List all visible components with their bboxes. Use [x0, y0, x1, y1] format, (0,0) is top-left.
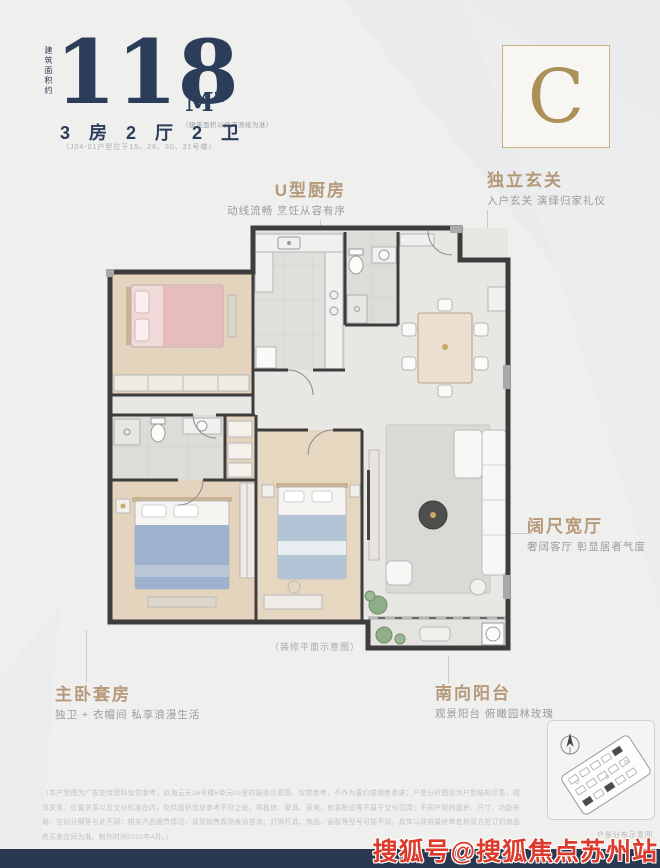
callout-kitchen-title: U型厨房 [200, 182, 346, 199]
callout-living: 阔尺宽厅 奢阔客厅 彰显居者气度 [527, 518, 660, 553]
compass-icon [561, 733, 579, 754]
site-map-svg [548, 721, 654, 819]
area-vertical-label: 建筑面积约 [42, 46, 54, 96]
floor-corridor [110, 395, 253, 415]
room-layout-note: （J04-01户型位于15、26、30、31号楼） [62, 142, 217, 152]
unit-type-letter: C [528, 60, 585, 134]
leader-line-balcony [448, 656, 449, 683]
floor-plan [88, 225, 518, 655]
watermark-text: 搜狐号@搜狐焦点苏州站 [373, 832, 658, 868]
callout-balcony-title: 南向阳台 [435, 685, 605, 702]
callout-living-title: 阔尺宽厅 [527, 518, 660, 535]
callout-master-title: 主卧套房 [55, 686, 245, 703]
callout-balcony: 南向阳台 观景阳台 俯瞰园林玫瑰 [435, 685, 605, 720]
unit-type-badge: C [502, 45, 610, 148]
callout-kitchen-subtitle: 动线流畅 烹饪从容有序 [200, 206, 346, 217]
site-plan-diagram [560, 734, 652, 816]
callout-foyer-title: 独立玄关 [487, 172, 652, 189]
callout-foyer: 独立玄关 入户玄关 演绎归家礼仪 [487, 172, 652, 207]
callout-balcony-subtitle: 观景阳台 俯瞰园林玫瑰 [435, 709, 605, 720]
leader-line-master [86, 630, 87, 682]
plan-caption: （装修平面示意图） [270, 640, 360, 653]
floor-plan-svg [88, 225, 518, 655]
callout-kitchen: U型厨房 动线流畅 烹饪从容有序 [200, 182, 346, 217]
callout-master-subtitle: 独卫 + 衣帽间 私享浪漫生活 [55, 710, 245, 721]
closet-shelves [228, 421, 252, 477]
callout-master: 主卧套房 独卫 + 衣帽间 私享浪漫生活 [55, 686, 245, 721]
callout-foyer-subtitle: 入户玄关 演绎归家礼仪 [487, 196, 652, 207]
area-unit: M² [185, 88, 225, 118]
site-map-box [547, 720, 655, 820]
poster-canvas: 建筑面积约 118 M² （建筑面积以房产测绘为准） 3 房 2 厅 2 卫 （… [0, 0, 660, 868]
callout-living-subtitle: 奢阔客厅 彰显居者气度 [527, 542, 660, 553]
